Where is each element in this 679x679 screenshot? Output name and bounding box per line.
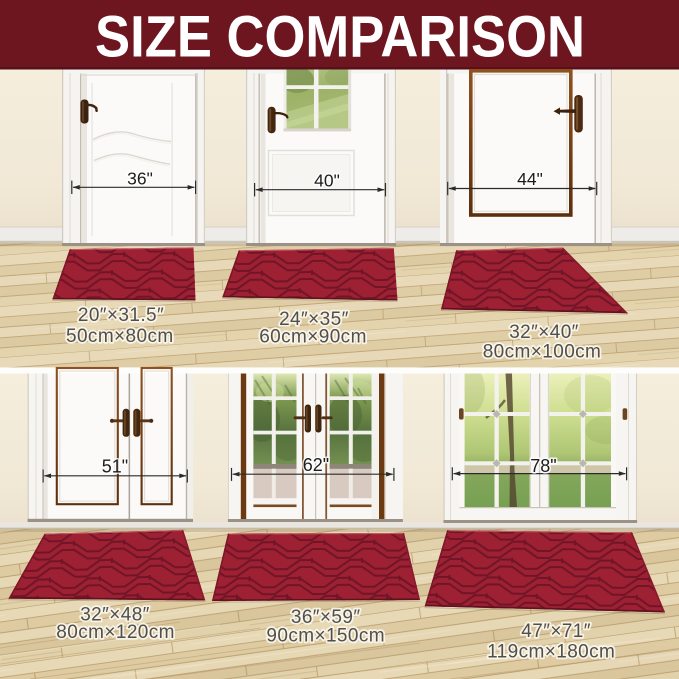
svg-text:20″×31.5″: 20″×31.5″ [78,305,164,326]
svg-text:51": 51" [102,457,128,477]
svg-text:90cm×150cm: 90cm×150cm [266,626,385,647]
svg-text:44": 44" [517,169,543,189]
svg-text:119cm×180cm: 119cm×180cm [487,641,615,662]
svg-text:32″×40″: 32″×40″ [509,322,579,343]
svg-text:62": 62" [303,455,329,475]
svg-text:80cm×100cm: 80cm×100cm [483,341,602,362]
svg-text:50cm×80cm: 50cm×80cm [66,326,174,347]
svg-text:40": 40" [314,170,340,190]
svg-text:36": 36" [127,168,153,188]
svg-text:47″×71″: 47″×71″ [521,621,591,642]
svg-text:SIZE COMPARISON: SIZE COMPARISON [95,5,585,70]
svg-text:80cm×120cm: 80cm×120cm [56,622,175,643]
svg-text:78": 78" [530,456,556,476]
svg-text:60cm×90cm: 60cm×90cm [259,326,367,347]
